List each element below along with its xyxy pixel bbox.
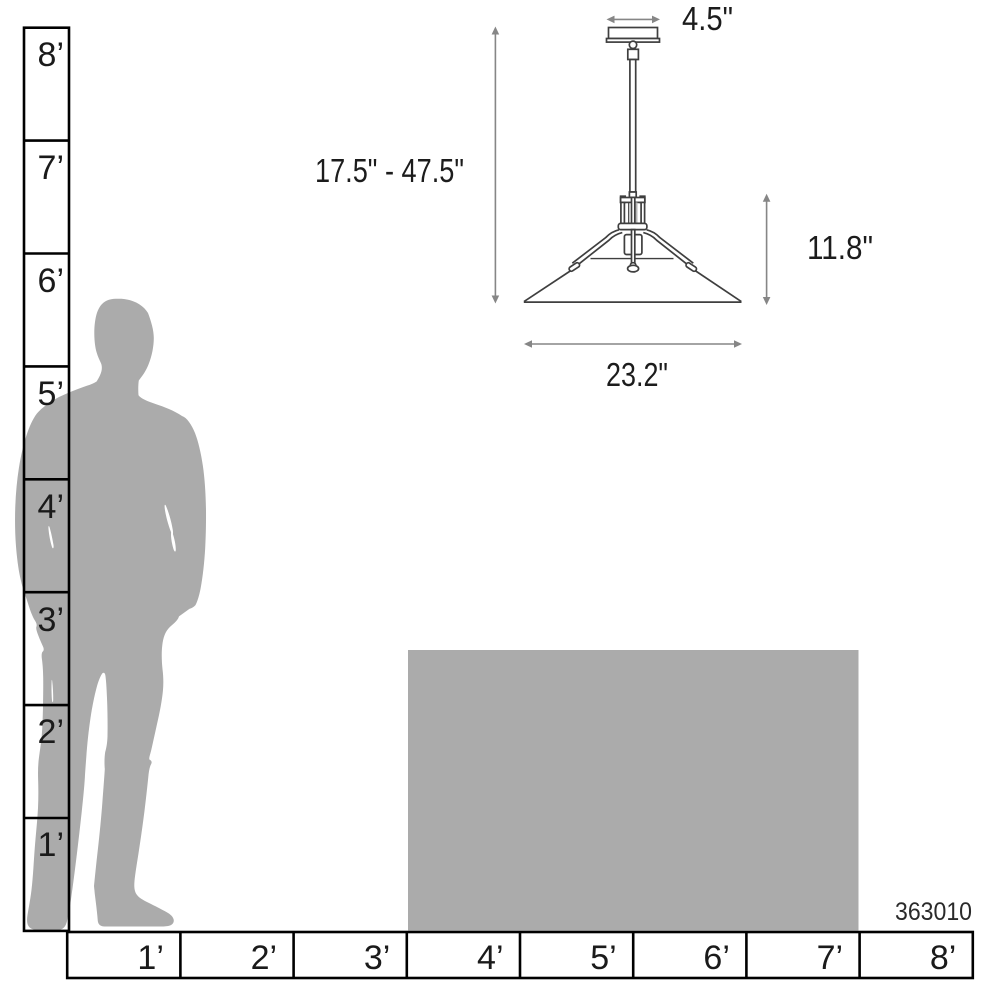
svg-text:4’: 4’ xyxy=(477,939,503,977)
svg-text:23.2": 23.2" xyxy=(606,356,668,393)
svg-text:5’: 5’ xyxy=(590,939,616,977)
svg-text:6’: 6’ xyxy=(38,262,64,300)
svg-text:4.5": 4.5" xyxy=(682,0,733,37)
svg-text:6’: 6’ xyxy=(703,939,729,977)
svg-text:7’: 7’ xyxy=(38,149,64,187)
svg-text:17.5" - 47.5": 17.5" - 47.5" xyxy=(315,152,464,189)
svg-text:2’: 2’ xyxy=(38,713,64,751)
svg-text:1’: 1’ xyxy=(38,826,64,864)
svg-text:3’: 3’ xyxy=(364,939,390,977)
svg-text:1’: 1’ xyxy=(137,939,163,977)
svg-text:5’: 5’ xyxy=(38,375,64,413)
svg-text:8’: 8’ xyxy=(38,36,64,74)
svg-text:2’: 2’ xyxy=(251,939,277,977)
svg-text:3’: 3’ xyxy=(38,601,64,639)
svg-text:363010: 363010 xyxy=(895,898,972,926)
svg-text:8’: 8’ xyxy=(930,939,956,977)
svg-text:11.8": 11.8" xyxy=(807,229,873,266)
svg-text:4’: 4’ xyxy=(38,488,64,526)
svg-text:7’: 7’ xyxy=(817,939,843,977)
